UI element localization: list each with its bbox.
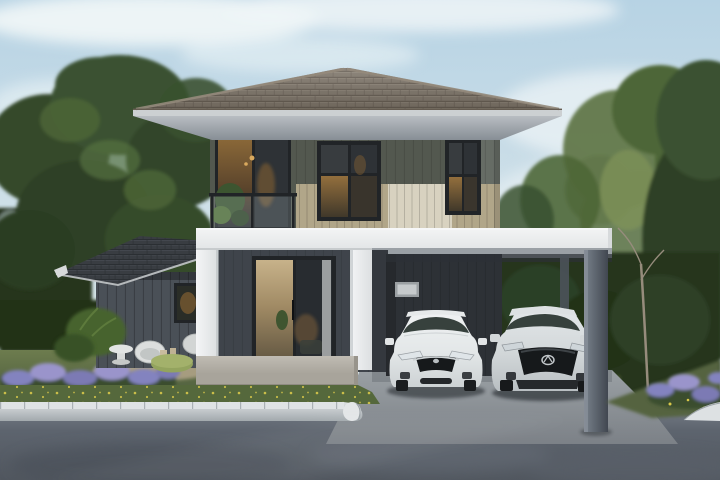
carport-column xyxy=(580,250,612,436)
suv-wheel xyxy=(500,380,513,391)
grass-strip xyxy=(0,385,380,404)
center-window xyxy=(317,141,381,221)
suv-mirror xyxy=(490,334,500,342)
balcony xyxy=(209,136,297,230)
door-handle xyxy=(292,300,294,320)
roof-fascia xyxy=(133,110,562,116)
house-render-image xyxy=(0,0,720,480)
right-window xyxy=(445,139,481,215)
wall-vent xyxy=(395,282,419,297)
sedan-mirror xyxy=(385,338,394,345)
portico-column-left xyxy=(196,250,218,372)
scene-svg xyxy=(0,0,720,480)
sedan-wheel xyxy=(464,380,476,391)
sedan-wheel xyxy=(396,380,408,391)
glass-sliding-door xyxy=(252,256,336,368)
sedan-logo xyxy=(433,359,439,363)
entrance xyxy=(196,250,372,372)
portico-column-right xyxy=(350,250,372,370)
carport-rear-post xyxy=(560,254,569,314)
curb xyxy=(0,402,362,421)
sedan-mirror xyxy=(478,338,487,345)
second-floor xyxy=(209,126,500,230)
terrace xyxy=(196,356,358,387)
